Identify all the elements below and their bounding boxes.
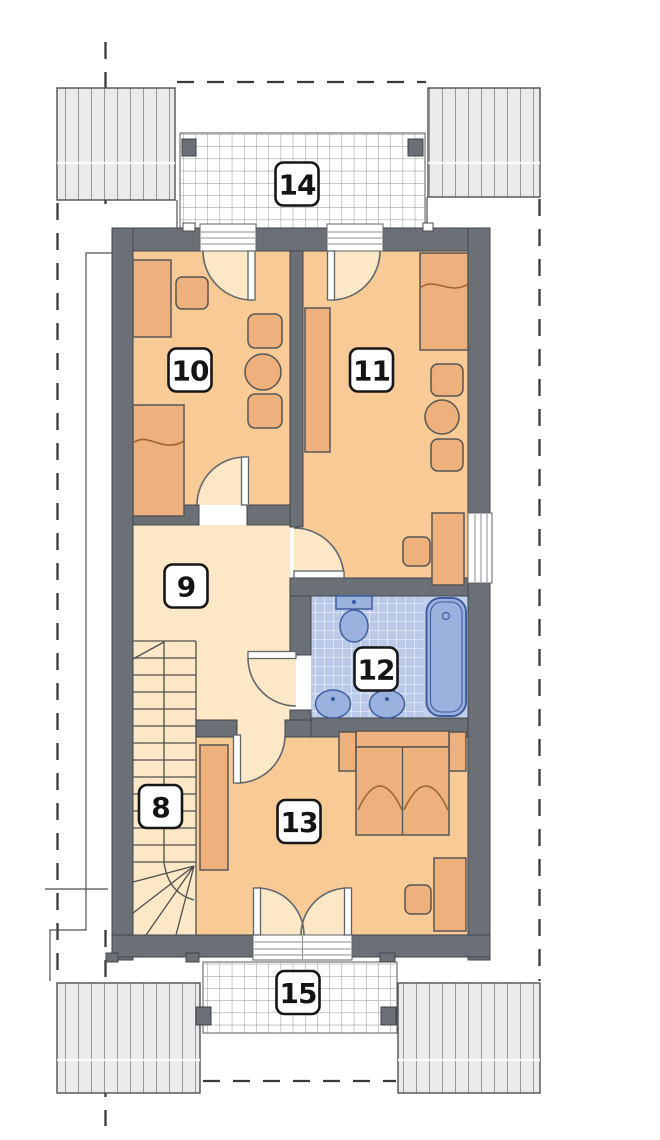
room-label-9: 9 [165, 565, 208, 608]
door-leaf-french-right [345, 888, 352, 935]
room-label-8: 8 [139, 785, 182, 828]
nightstand-left [339, 732, 356, 771]
wall-partition-10-11 [290, 251, 303, 527]
wardrobe-room13 [200, 745, 228, 870]
chair-room13-desk [405, 885, 431, 914]
floor-hallway [133, 525, 290, 641]
svg-text:13: 13 [281, 806, 318, 839]
wall-stub [106, 953, 118, 962]
chair-room10-table-north [248, 314, 282, 348]
window-room11-east [468, 513, 492, 583]
chair-room10-table-south [248, 394, 282, 428]
french-door-room13 [253, 935, 352, 960]
door-leaf-french-left [254, 888, 261, 935]
balcony-door-room11 [327, 224, 383, 251]
svg-text:14: 14 [279, 169, 316, 202]
floor-plan: 14 10 11 9 12 8 13 15 [0, 0, 660, 1140]
wall-room13-north-left [196, 720, 237, 737]
desk-room10 [133, 260, 171, 337]
table-room11 [425, 400, 459, 434]
bed-headboard [356, 731, 449, 747]
chair-room11-desk [403, 537, 430, 566]
svg-text:10: 10 [172, 355, 209, 388]
wall-left [112, 228, 133, 960]
wall-room13-north-mid [285, 720, 311, 737]
double-bed-room13 [339, 731, 466, 835]
svg-text:9: 9 [177, 571, 195, 604]
desk-room13 [434, 858, 466, 931]
desk-room11 [432, 513, 464, 585]
room-label-14: 14 [276, 163, 319, 206]
roof-bottom-right [398, 983, 540, 1093]
room-label-12: 12 [355, 648, 398, 691]
room-label-15: 15 [277, 971, 320, 1014]
terrace-post [408, 139, 423, 156]
door-leaf-bathroom [248, 652, 296, 659]
chair-room11-table-south [431, 439, 463, 471]
chair-room11-table-north [431, 364, 463, 396]
roof-bottom-left [57, 983, 200, 1093]
terrace-post [381, 1007, 396, 1025]
room-label-11: 11 [350, 349, 393, 392]
wall-tick [423, 223, 433, 231]
room-label-10: 10 [169, 349, 212, 392]
sink-right [370, 690, 405, 718]
sink-left [316, 690, 351, 718]
wardrobe-room11 [305, 308, 330, 452]
wall-bathroom-west-upper [290, 596, 311, 655]
wall-stub [380, 953, 395, 962]
terrace-post [182, 139, 196, 156]
nightstand-right [449, 732, 466, 771]
roof-top-left [57, 88, 175, 200]
wall-room10-south-right [247, 505, 290, 525]
svg-text:8: 8 [151, 791, 169, 824]
svg-text:12: 12 [358, 654, 395, 687]
door-leaf-room11-hall [294, 571, 344, 578]
wall-tick [183, 223, 195, 231]
door-leaf-room10-balcony [248, 251, 255, 300]
door-leaf-room13 [234, 735, 241, 783]
chair-room10-desk [176, 277, 208, 309]
bed-room10 [133, 405, 184, 516]
svg-text:15: 15 [280, 977, 317, 1010]
door-leaf-room11-balcony [328, 251, 335, 300]
lower-floor-outline [50, 253, 112, 981]
room-label-13: 13 [278, 800, 321, 843]
roof-top-right [428, 88, 540, 197]
table-room10 [245, 354, 281, 390]
terrace-post [196, 1007, 211, 1025]
bed-room11 [420, 253, 468, 350]
bathtub [427, 598, 467, 716]
wall-right [468, 228, 490, 960]
door-leaf-room10-hall [242, 457, 249, 505]
svg-text:11: 11 [353, 355, 390, 388]
balcony-door-room10 [200, 224, 256, 251]
wall-stub [186, 953, 199, 962]
floor-door-threshold [237, 720, 285, 737]
